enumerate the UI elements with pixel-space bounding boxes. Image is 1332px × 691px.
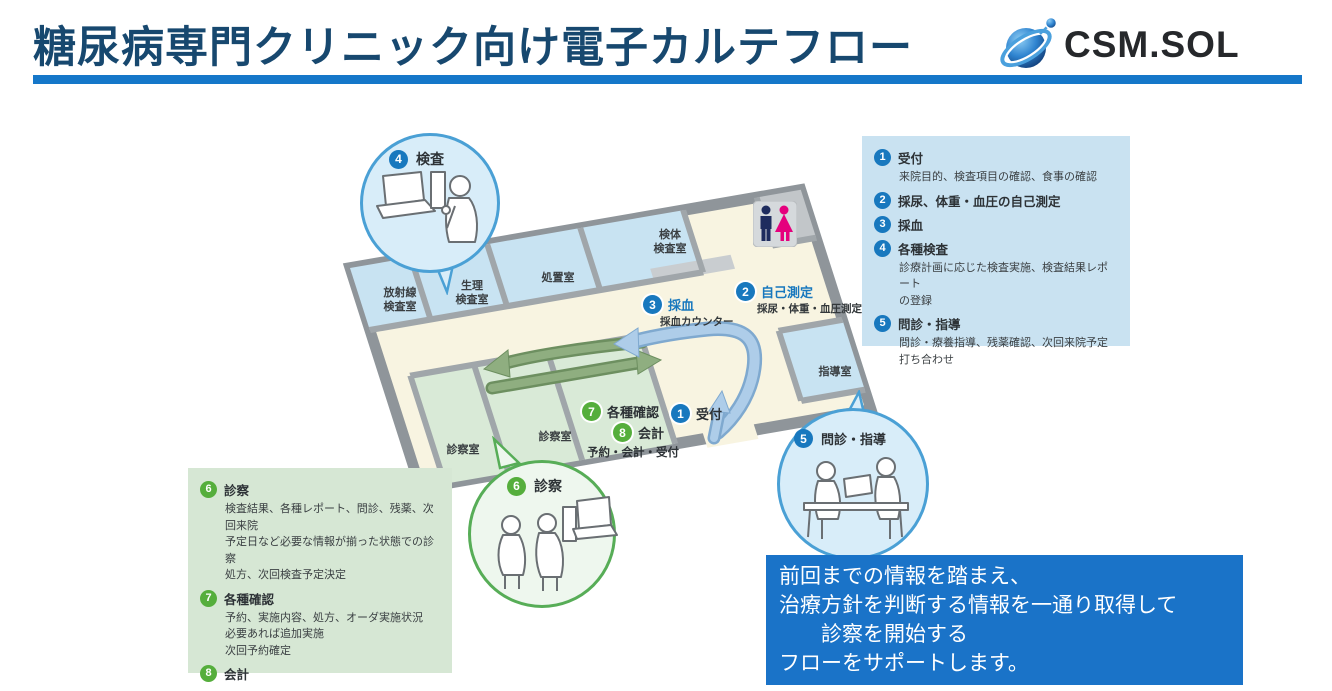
legend-1-badge: 1	[874, 149, 891, 166]
legend-5-desc: 問診・療養指導、残薬確認、次回来院予定 打ち合わせ	[899, 335, 1118, 368]
bubble-interview: 5 問診・指導	[777, 408, 929, 560]
reception-counter-label: 予約・会計・受付	[587, 444, 679, 460]
legend-steps-6-8: 6 診察 検査結果、各種レポート、問診、残薬、次回来院 予定日など必要な情報が揃…	[188, 468, 452, 673]
legend-item-5: 5 問診・指導 問診・療養指導、残薬確認、次回来院予定 打ち合わせ	[874, 314, 1118, 368]
logo-swirl-icon	[998, 14, 1060, 76]
bubble-5-label: 問診・指導	[821, 429, 886, 448]
legend-item-2: 2 採尿、体重・血圧の自己測定	[874, 191, 1118, 210]
legend-1-title: 受付	[898, 148, 923, 167]
map-step-2: 2 自己測定	[736, 282, 813, 301]
bubble-5-head: 5 問診・指導	[794, 429, 886, 448]
legend-4-desc: 診療計画に応じた検査実施、検査結果レポート の登録	[899, 260, 1118, 310]
message-line-1: 前回までの情報を踏まえ、	[779, 562, 1230, 591]
legend-7-badge: 7	[200, 590, 217, 607]
legend-item-3: 3 採血	[874, 215, 1118, 234]
step-2-badge: 2	[736, 282, 755, 301]
legend-6-desc: 検査結果、各種レポート、問診、残薬、次回来院 予定日など必要な情報が揃った状態で…	[225, 501, 440, 584]
step-7-badge: 7	[582, 402, 601, 421]
legend-item-4: 4 各種検査 診療計画に応じた検査実施、検査結果レポート の登録	[874, 239, 1118, 310]
room-label-radiology: 放射線 検査室	[384, 287, 417, 315]
bubble-4-label: 検査	[416, 149, 444, 169]
bubble-4-head: 4 検査	[389, 149, 444, 169]
legend-5-title: 問診・指導	[898, 314, 961, 333]
legend-7-title: 各種確認	[224, 589, 274, 608]
legend-6-title: 診察	[224, 480, 249, 499]
legend-6-badge: 6	[200, 481, 217, 498]
step-3-sub: 採血カウンター	[660, 314, 734, 329]
legend-item-7: 7 各種確認 予約、実施内容、処方、オーダ実施状況 必要あれば追加実施 次回予約…	[200, 589, 440, 660]
header-rule	[33, 75, 1302, 84]
legend-8-badge: 8	[200, 665, 217, 682]
legend-3-badge: 3	[874, 216, 891, 233]
logo: CSM.SOL	[998, 14, 1240, 76]
map-step-7: 7 各種確認	[582, 402, 659, 421]
summary-message-box: 前回までの情報を踏まえ、 治療方針を判断する情報を一通り取得して 診察を開始する…	[766, 555, 1243, 685]
room-label-specimen: 検体 検査室	[654, 229, 687, 257]
step-2-label: 自己測定	[761, 282, 813, 301]
logo-text: CSM.SOL	[1064, 24, 1240, 66]
step-2-sub: 採尿・体重・血圧測定	[757, 301, 862, 316]
page: 糖尿病専門クリニック向け電子カルテフロー CSM.SOL	[0, 0, 1332, 691]
legend-7-desc: 予約、実施内容、処方、オーダ実施状況 必要あれば追加実施 次回予約確定	[225, 610, 440, 660]
map-step-1: 1 受付	[671, 404, 722, 423]
legend-8-title: 会計	[224, 664, 249, 683]
message-line-2: 治療方針を判断する情報を一通り取得して	[779, 591, 1230, 620]
map-step-8: 8 会計	[613, 423, 664, 442]
step-8-label: 会計	[638, 423, 664, 442]
legend-2-badge: 2	[874, 192, 891, 209]
legend-3-title: 採血	[898, 215, 923, 234]
message-line-4: フローをサポートします。	[779, 649, 1230, 678]
room-label-exam2: 診察室	[539, 431, 572, 445]
restroom-icon	[753, 201, 797, 252]
legend-item-8: 8 会計	[200, 664, 440, 683]
bubble-6-head: 6 診察	[507, 476, 562, 496]
legend-5-badge: 5	[874, 315, 891, 332]
bubble-4-badge: 4	[389, 150, 408, 169]
room-label-treatment: 処置室	[542, 272, 575, 286]
legend-2-title: 採尿、体重・血圧の自己測定	[898, 191, 1061, 210]
map-step-3: 3 採血	[643, 295, 694, 314]
bubble-consultation: 6 診察	[468, 460, 616, 608]
message-line-3: 診察を開始する	[779, 620, 1230, 649]
step-3-label: 採血	[668, 295, 694, 314]
legend-item-6: 6 診察 検査結果、各種レポート、問診、残薬、次回来院 予定日など必要な情報が揃…	[200, 480, 440, 584]
bubble-6-label: 診察	[534, 476, 562, 496]
bubble-5-badge: 5	[794, 429, 813, 448]
legend-4-badge: 4	[874, 240, 891, 257]
step-3-badge: 3	[643, 295, 662, 314]
legend-item-1: 1 受付 来院目的、検査項目の確認、食事の確認	[874, 148, 1118, 186]
legend-4-title: 各種検査	[898, 239, 948, 258]
bubble-6-badge: 6	[507, 477, 526, 496]
legend-steps-1-5: 1 受付 来院目的、検査項目の確認、食事の確認 2 採尿、体重・血圧の自己測定 …	[862, 136, 1130, 346]
step-8-badge: 8	[613, 423, 632, 442]
page-title: 糖尿病専門クリニック向け電子カルテフロー	[33, 13, 913, 75]
bubble-inspection: 4 検査	[360, 133, 500, 273]
room-label-exam1: 診察室	[447, 444, 480, 458]
step-1-badge: 1	[671, 404, 690, 423]
step-7-label: 各種確認	[607, 402, 659, 421]
room-label-guidance: 指導室	[819, 366, 852, 380]
step-1-label: 受付	[696, 404, 722, 423]
legend-1-desc: 来院目的、検査項目の確認、食事の確認	[899, 169, 1118, 186]
